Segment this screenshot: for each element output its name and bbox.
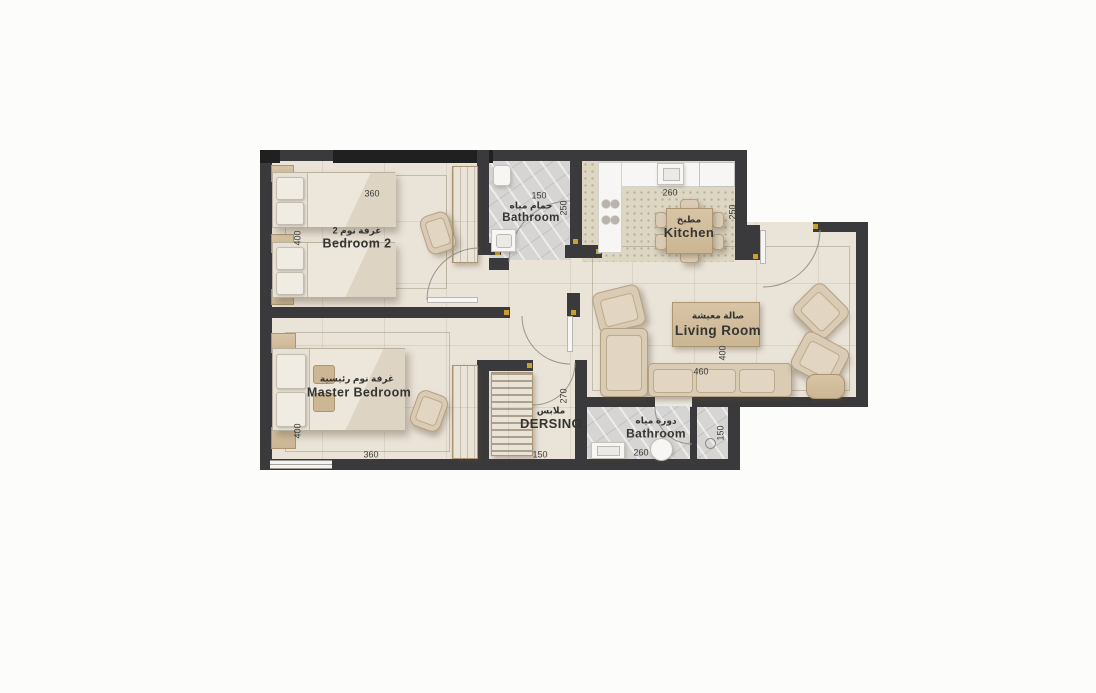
pillow (276, 354, 306, 389)
dim-bathroom-top-depth: 250 (559, 200, 568, 215)
chair-cushion (424, 217, 452, 250)
wall-bedroom2-right (477, 150, 489, 255)
blanket (307, 173, 396, 227)
dim-living-width: 460 (693, 367, 708, 376)
chair-cushion (414, 395, 444, 427)
dim-dressing-depth: 270 (559, 388, 568, 403)
door-leaf-master (567, 316, 573, 352)
wall-shower-divider (690, 407, 697, 460)
outside-area-top-right (747, 150, 870, 222)
pillow (276, 177, 304, 200)
kitchen-cabinet (699, 162, 735, 187)
page: { "plan": { "title": "apartment-floor-pl… (0, 0, 1096, 693)
wardrobe-bedroom2 (452, 166, 478, 263)
jamb-marker (753, 254, 758, 259)
window-master-bedroom (270, 460, 332, 469)
wall-living-bottom-left (575, 397, 655, 407)
dim-kitchen-width: 260 (662, 188, 677, 197)
sofa (648, 363, 792, 397)
door-leaf-entrance (760, 230, 766, 264)
dim-living-depth: 400 (718, 345, 727, 360)
room-label-bathroom-bottom-en: Bathroom (626, 428, 686, 441)
dim-bedroom2-width: 360 (364, 189, 379, 198)
room-label-dressing-ar: ملابس (537, 406, 566, 415)
blanket (307, 243, 396, 297)
dim-dressing-width: 150 (532, 450, 547, 459)
jamb-marker (573, 239, 578, 244)
wardrobe-dressing (491, 372, 533, 456)
wall-dressing-left (477, 360, 489, 459)
bathroom-sink (491, 229, 516, 252)
sofa-cushion (606, 335, 642, 391)
room-label-bedroom2-en: Bedroom 2 (323, 237, 392, 250)
jamb-marker (504, 310, 509, 315)
kitchen-sink (657, 163, 684, 185)
wall-dressing-top (477, 360, 533, 371)
room-label-living-ar: صالة معيشة (692, 311, 744, 320)
dim-kitchen-depth: 250 (728, 204, 737, 219)
wall-beam-corner (260, 150, 280, 163)
dim-bathroom-bottom-width: 260 (633, 448, 648, 457)
wall-outer-bottom (260, 459, 740, 470)
wall-outer-right (856, 222, 868, 407)
room-label-living-en: Living Room (675, 324, 761, 338)
toilet (493, 165, 511, 186)
floor-plan: 360 400 غرفة نوم 2 Bedroom 2 150 250 حما… (255, 150, 870, 470)
chair-cushion (599, 292, 639, 327)
room-label-bedroom2-ar: غرفة نوم 2 (333, 226, 382, 235)
pillow (276, 272, 304, 295)
wall-dressing-right (575, 360, 587, 459)
bed-single-1 (272, 172, 395, 228)
room-label-bathroom-top-en: Bathroom (502, 212, 560, 224)
pillow (276, 392, 306, 427)
room-label-dressing-en: DERSING (520, 417, 582, 431)
room-label-kitchen-en: Kitchen (664, 226, 714, 240)
sofa-cushion (653, 369, 693, 393)
sofa-cushion (739, 369, 775, 393)
wall-mid-divider (260, 307, 510, 318)
dim-bathroom-bottom-depth: 150 (716, 425, 725, 440)
door-leaf-bedroom2 (427, 297, 478, 303)
room-label-bathroom-bottom-ar: دورة مياه (635, 416, 676, 425)
room-label-kitchen-ar: مطبخ (677, 215, 702, 224)
sink-basin (496, 234, 512, 248)
dim-master-width: 360 (363, 450, 378, 459)
wardrobe-master (452, 365, 478, 459)
door-threshold-bathroom-bottom (655, 399, 692, 406)
pillow (276, 202, 304, 225)
sofa-chaise (600, 328, 648, 397)
wall-bathroom-top-stub (489, 258, 509, 270)
pillow (276, 247, 304, 270)
outside-area-bottom-right (740, 407, 870, 470)
stove (600, 197, 621, 229)
wall-living-bottom-right (692, 397, 868, 407)
side-table (806, 374, 845, 399)
bathroom-sink (591, 442, 625, 459)
toilet (650, 438, 673, 461)
dim-bedroom2-depth: 400 (293, 230, 302, 245)
jamb-marker (571, 310, 576, 315)
room-label-master-en: Master Bedroom (307, 386, 411, 399)
jamb-marker (527, 363, 532, 368)
wall-beam-top (333, 150, 493, 163)
jamb-marker (813, 224, 818, 229)
sink-basin (597, 446, 620, 456)
dim-master-depth: 400 (293, 423, 302, 438)
wall-bathroom-bottom-right (728, 397, 740, 470)
wall-bath-kitchen-divider (570, 150, 582, 245)
room-label-master-ar: غرفة نوم رئيسية (320, 374, 394, 383)
room-label-bathroom-top-ar: حمام مياه (510, 201, 553, 210)
sink-basin (663, 168, 680, 181)
